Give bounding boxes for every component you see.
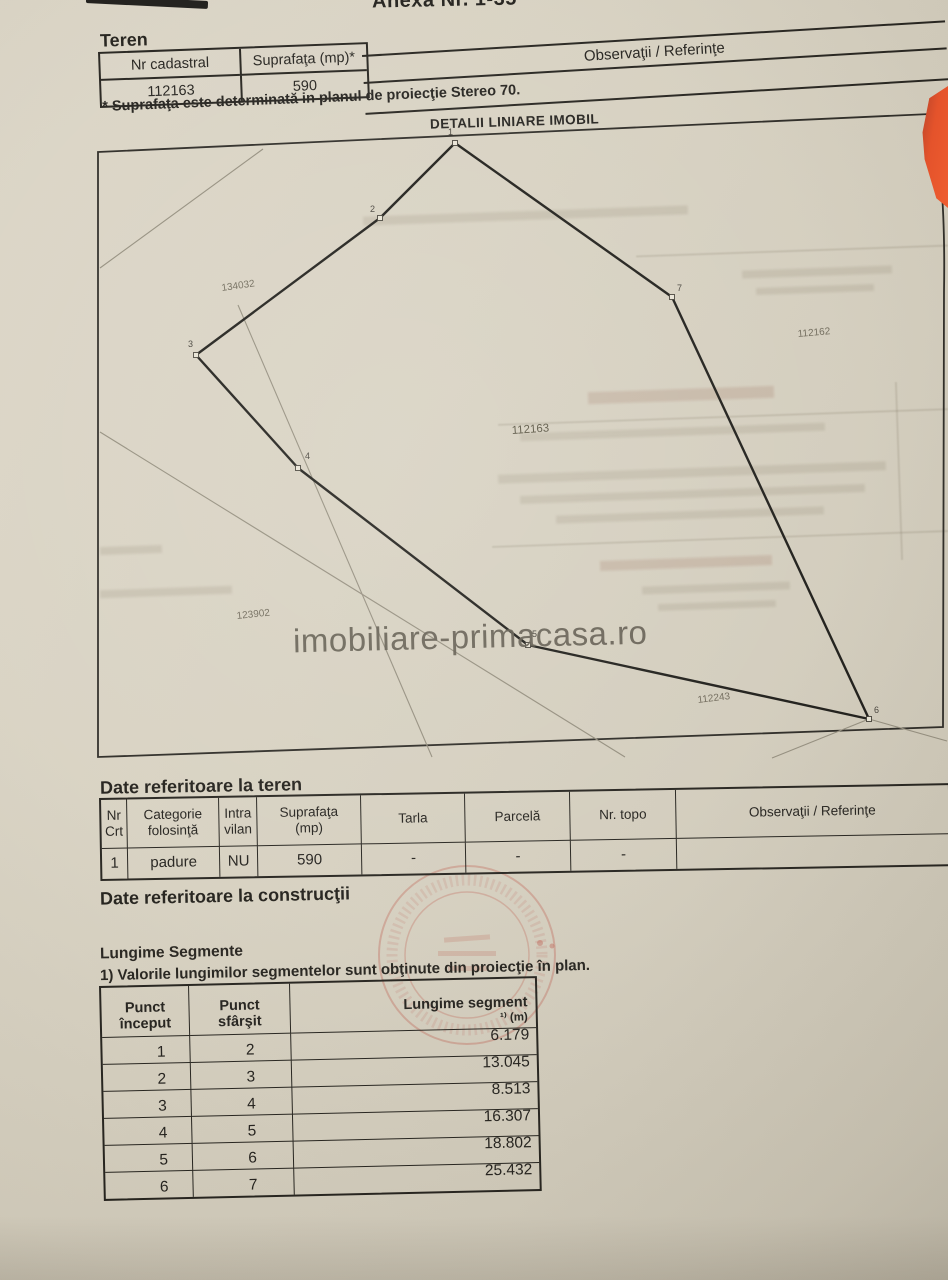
table-cell: - xyxy=(362,843,467,875)
section-heading-date-constructii: Date referitoare la construcţii xyxy=(100,883,350,909)
column-header: Nr. topo xyxy=(570,790,677,841)
table-cell: 2 xyxy=(190,1034,292,1062)
table-cell: 2 xyxy=(103,1062,192,1091)
table-cell: 3 xyxy=(191,1060,293,1089)
table-cell: 5 xyxy=(192,1114,294,1143)
table-cell: 6 xyxy=(105,1170,194,1199)
vertex-label: 2 xyxy=(370,204,375,214)
neighbor-boundary-line xyxy=(238,305,432,757)
plot-title: DETALII LINIARE IMOBIL xyxy=(430,111,599,131)
scanned-cadastral-document: 1234567134032112162112163123902112243 im… xyxy=(0,0,948,1280)
vertex-label: 3 xyxy=(188,339,193,349)
column-header-lungime-segment: Lungime segment ¹⁾ (m) xyxy=(290,978,536,1034)
vertex-label: 4 xyxy=(305,451,310,461)
table-cell: 1 xyxy=(102,849,129,879)
table-cell: 4 xyxy=(104,1116,193,1145)
date-teren-table: Nr Crt Categorie folosinţă Intra vilan S… xyxy=(99,783,948,881)
table-cell: - xyxy=(466,841,572,873)
vertex-tick xyxy=(378,216,383,221)
table-cell: 25.432 xyxy=(294,1162,540,1195)
vertex-tick xyxy=(194,353,199,358)
column-header: Nr Crt xyxy=(101,800,128,849)
table-cell: 5 xyxy=(105,1143,194,1172)
column-header-punct-inceput: Punct început xyxy=(101,986,190,1038)
parcel-number-label: 112163 xyxy=(511,422,549,437)
vertex-tick xyxy=(453,141,458,146)
photo-background-orange-edge xyxy=(922,86,948,208)
table-cell: padure xyxy=(128,847,221,879)
neighbor-boundary-line xyxy=(869,719,947,741)
plot-frame xyxy=(98,114,944,757)
vertex-label: 6 xyxy=(874,705,879,715)
segments-table: Punct început Punct sfârşit Lungime segm… xyxy=(99,976,542,1201)
column-header: Suprafaţa (mp) xyxy=(257,795,362,846)
watermark-text: imobiliare-primacasa.ro xyxy=(293,614,648,661)
table-cell: 590 xyxy=(258,844,363,876)
parcel-number-label: 112162 xyxy=(797,326,831,340)
table-cell: 3 xyxy=(103,1089,192,1118)
top-edge-black-bar xyxy=(86,0,208,9)
column-header-punct-sfarsit: Punct sfârşit xyxy=(189,984,291,1036)
column-header: Categorie folosinţă xyxy=(127,798,220,849)
section-heading-teren: Teren xyxy=(100,29,148,51)
neighbor-boundary-line xyxy=(772,719,869,758)
neighbor-boundary-line xyxy=(100,432,625,757)
table-cell xyxy=(677,834,948,869)
parcel-number-label: 123902 xyxy=(236,608,271,622)
table-cell: 6 xyxy=(193,1141,295,1170)
column-header: Parcelă xyxy=(465,792,571,843)
neighbor-boundary-line xyxy=(100,149,263,268)
column-header-unit: ¹⁾ (m) xyxy=(500,1011,528,1025)
parcel-number-label: 134032 xyxy=(221,278,256,294)
vertex-tick xyxy=(296,466,301,471)
table-cell: 1 xyxy=(102,1036,191,1064)
column-header: Observaţii / Referinţe xyxy=(676,785,948,839)
section-heading-lungime-segmente: Lungime Segmente xyxy=(100,943,243,964)
table-cell: NU xyxy=(220,846,259,877)
vertex-tick xyxy=(867,717,872,722)
table-cell: 7 xyxy=(193,1168,295,1197)
page-title: Anexa Nr. 1-35 xyxy=(372,0,517,14)
table-cell: - xyxy=(571,839,678,871)
column-header: Tarla xyxy=(361,794,466,845)
parcel-number-label: 112243 xyxy=(697,691,731,706)
table-cell: 4 xyxy=(191,1087,293,1116)
vertex-tick xyxy=(670,295,675,300)
column-header: Intra vilan xyxy=(219,797,258,847)
vertex-label: 7 xyxy=(677,283,682,293)
